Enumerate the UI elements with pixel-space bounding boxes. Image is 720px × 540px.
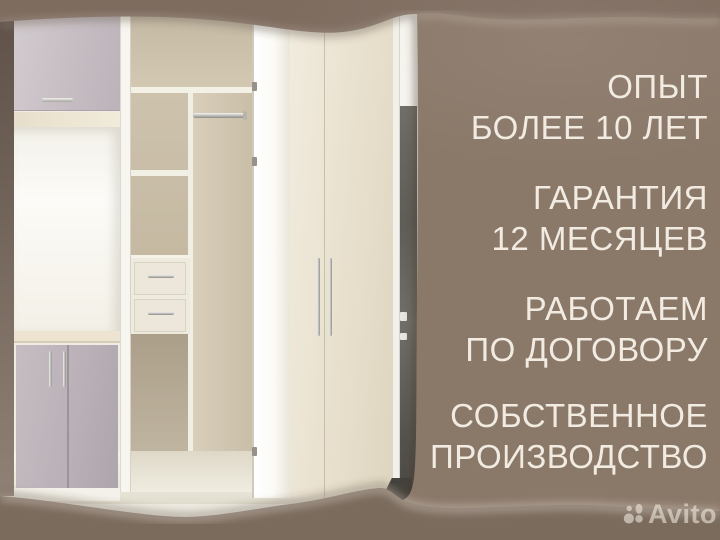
benefit-line: 12 МЕСЯЦЕВ — [278, 218, 708, 259]
benefit-line: ГАРАНТИЯ — [278, 177, 708, 218]
benefit-contract: РАБОТАЕМ ПО ДОГОВОРУ — [278, 288, 708, 370]
benefit-line: ПРОИЗВОДСТВО — [278, 436, 708, 477]
benefit-line: БОЛЕЕ 10 ЛЕТ — [278, 107, 708, 148]
benefit-line: ОПЫТ — [278, 66, 708, 107]
benefit-experience: ОПЫТ БОЛЕЕ 10 ЛЕТ — [278, 66, 708, 148]
avito-wordmark: Avito — [648, 499, 717, 529]
avito-watermark: Avito — [621, 497, 717, 531]
benefit-warranty: ГАРАНТИЯ 12 МЕСЯЦЕВ — [278, 177, 708, 259]
benefit-production: СОБСТВЕННОЕ ПРОИЗВОДСТВО — [278, 395, 708, 477]
benefit-line: РАБОТАЕМ — [278, 288, 708, 329]
benefit-line: СОБСТВЕННОЕ — [278, 395, 708, 436]
benefit-line: ПО ДОГОВОРУ — [278, 329, 708, 370]
ad-banner: ОПЫТ БОЛЕЕ 10 ЛЕТ ГАРАНТИЯ 12 МЕСЯЦЕВ РА… — [0, 0, 720, 540]
avito-logo-icon — [621, 500, 645, 528]
